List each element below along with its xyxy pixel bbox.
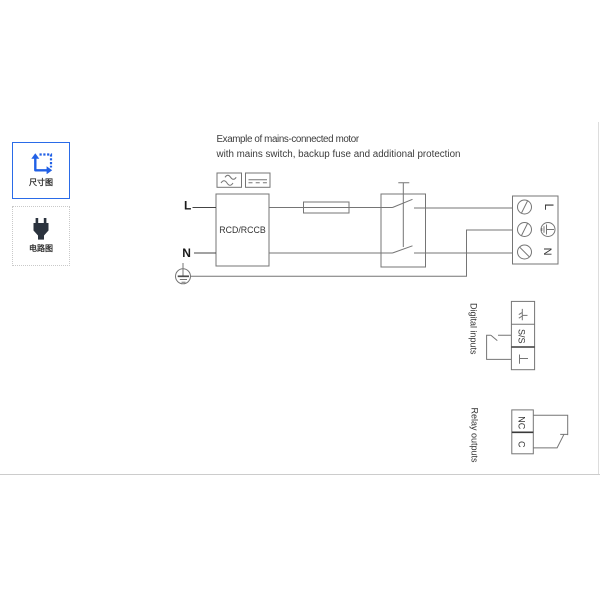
svg-text:L: L <box>542 203 556 210</box>
svg-text:Relay outputs: Relay outputs <box>470 407 480 463</box>
svg-text:NC: NC <box>516 416 526 429</box>
svg-text:S/S: S/S <box>517 329 527 344</box>
svg-text:N: N <box>182 246 191 260</box>
svg-text:C: C <box>516 441 526 448</box>
svg-text:Digital inputs: Digital inputs <box>469 303 479 355</box>
svg-text:L: L <box>184 198 191 212</box>
svg-text:RCD/RCCB: RCD/RCCB <box>219 225 266 235</box>
svg-text:N: N <box>541 248 553 256</box>
